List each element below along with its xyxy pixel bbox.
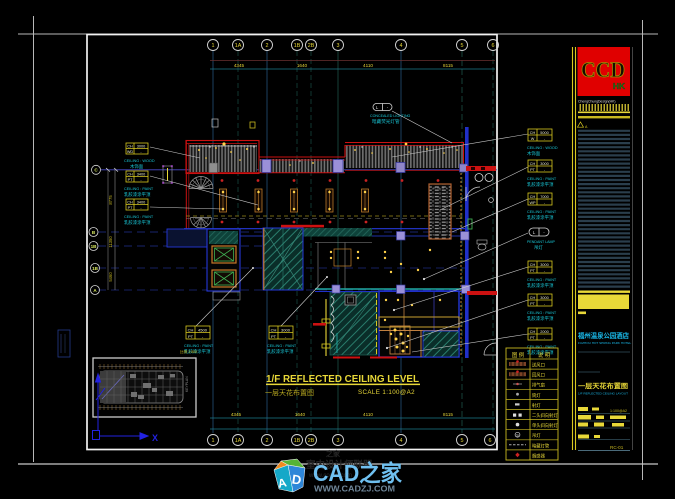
svg-text:CEILING : PAINT: CEILING : PAINT [527, 210, 557, 214]
svg-text:3: 3 [337, 438, 340, 444]
svg-text:图 例: 图 例 [512, 351, 524, 359]
svg-text:WD: WD [127, 150, 134, 154]
svg-text:CH: CH [530, 162, 536, 166]
svg-text:1640: 1640 [297, 63, 308, 68]
svg-text:PT: PT [530, 269, 536, 273]
svg-text:6: 6 [489, 438, 492, 444]
svg-text:送风口: 送风口 [532, 362, 545, 369]
svg-text:CCD: CCD [581, 57, 625, 82]
svg-text:2000: 2000 [540, 330, 548, 334]
svg-text:PT: PT [530, 168, 536, 172]
svg-text:二头斜向射灯: 二头斜向射灯 [532, 412, 558, 419]
svg-text:1A: 1A [235, 43, 242, 49]
svg-text:暗藏灯管: 暗藏灯管 [532, 442, 550, 449]
svg-text:4: 4 [400, 438, 403, 444]
svg-text:FUZHOU HOT SPRING PARK HOTEL: FUZHOU HOT SPRING PARK HOTEL [578, 341, 631, 345]
svg-text:1/F REFLECTED CEILING LEVEL: 1/F REFLECTED CEILING LEVEL [266, 373, 420, 385]
svg-text:HK: HK [613, 81, 626, 91]
svg-text:PT: PT [128, 178, 134, 182]
svg-text:木饰面: 木饰面 [527, 150, 541, 157]
svg-text:PT: PT [188, 334, 194, 339]
svg-text:乳胶漆涂平顶: 乳胶漆涂平顶 [124, 219, 151, 226]
svg-text:CH: CH [127, 173, 133, 177]
svg-text:3000: 3000 [137, 145, 145, 149]
svg-text:3400: 3400 [137, 173, 145, 177]
svg-text:说 明: 说 明 [538, 351, 550, 359]
svg-text:5000: 5000 [540, 131, 548, 135]
svg-text:CH: CH [530, 131, 536, 135]
svg-text:1640: 1640 [295, 412, 306, 417]
svg-text:RC-01: RC-01 [610, 445, 624, 450]
svg-text:单头斜向射灯: 单头斜向射灯 [532, 422, 558, 429]
svg-text:3000: 3000 [540, 162, 548, 166]
svg-text:CH: CH [530, 263, 536, 267]
svg-text:CEILING : PAINT: CEILING : PAINT [267, 344, 297, 348]
svg-text:2B: 2B [308, 438, 315, 444]
svg-text:1:100@A2: 1:100@A2 [610, 409, 627, 413]
svg-text:乳胶漆涂平顶: 乳胶漆涂平顶 [124, 191, 151, 198]
svg-text:8775: 8775 [108, 195, 113, 205]
svg-text:CEILING : PAINT: CEILING : PAINT [184, 344, 214, 348]
svg-text:CH: CH [530, 330, 536, 334]
svg-text:乳胶漆涂平顶: 乳胶漆涂平顶 [527, 315, 554, 322]
svg-text:CEILING : PAINT: CEILING : PAINT [527, 278, 557, 282]
svg-text:CEILING : PAINT: CEILING : PAINT [124, 215, 154, 219]
svg-text:木饰面: 木饰面 [130, 163, 144, 170]
svg-text:1B: 1B [91, 244, 98, 249]
svg-text:乳胶漆涂平顶: 乳胶漆涂平顶 [527, 282, 554, 289]
svg-text:1A: 1A [235, 438, 242, 444]
svg-text:4110: 4110 [363, 412, 373, 417]
svg-text:ChengChungDesign(HK): ChengChungDesign(HK) [578, 100, 616, 104]
svg-text:PENDANT LAMP: PENDANT LAMP [527, 240, 555, 244]
svg-text:1/F REFLECTED CEILING LAYOUT: 1/F REFLECTED CEILING LAYOUT [578, 392, 628, 396]
svg-text:W: W [531, 137, 535, 141]
svg-text:X: X [152, 433, 158, 443]
svg-text:筒灯: 筒灯 [532, 392, 541, 399]
svg-text:5: 5 [461, 43, 464, 49]
svg-text:CEILING : PAINT: CEILING : PAINT [527, 311, 557, 315]
svg-text:3400: 3400 [137, 201, 145, 205]
svg-text:S: S [516, 433, 519, 438]
svg-text:CH: CH [271, 327, 277, 332]
svg-text:WWW.CADZJ.COM: WWW.CADZJ.COM [314, 485, 395, 494]
svg-text:1B: 1B [294, 43, 301, 49]
svg-text:CEILING : WOOD: CEILING : WOOD [124, 159, 155, 163]
svg-text:WP: WP [529, 201, 536, 205]
svg-text:排气扇: 排气扇 [532, 382, 545, 389]
svg-text:4: 4 [400, 43, 403, 49]
svg-text:吊灯: 吊灯 [532, 432, 541, 439]
svg-text:CEILING : PAINT: CEILING : PAINT [124, 187, 154, 191]
svg-text:乳胶漆涂平顶: 乳胶漆涂平顶 [527, 214, 554, 221]
svg-text:PT: PT [271, 334, 277, 339]
svg-text:乳胶漆涂平顶: 乳胶漆涂平顶 [527, 181, 554, 188]
svg-text:3000: 3000 [540, 263, 548, 267]
svg-text:吊灯: 吊灯 [534, 244, 543, 251]
svg-text:2B: 2B [308, 43, 315, 49]
svg-text:4345: 4345 [231, 412, 242, 417]
svg-text:乳胶漆涂平顶: 乳胶漆涂平顶 [267, 348, 294, 355]
svg-text:1B: 1B [92, 266, 99, 271]
svg-text:2: 2 [266, 438, 269, 444]
svg-text:CEILING : PAINT: CEILING : PAINT [527, 177, 557, 181]
svg-text:PT: PT [128, 206, 134, 210]
svg-text:8115: 8115 [443, 63, 453, 68]
svg-text:3000: 3000 [540, 296, 548, 300]
svg-text:7000: 7000 [540, 195, 548, 199]
svg-text:CAD之家: CAD之家 [313, 460, 402, 486]
svg-text:KEYPLAN: KEYPLAN [185, 376, 189, 392]
svg-text:11350: 11350 [108, 236, 113, 248]
svg-text:3000: 3000 [281, 327, 291, 332]
svg-text:CEILING : WOOD: CEILING : WOOD [527, 146, 558, 150]
svg-text:CH: CH [127, 145, 133, 149]
svg-text:烟感器: 烟感器 [532, 452, 546, 459]
svg-text:1B: 1B [294, 438, 301, 444]
svg-text:一层天花布置图: 一层天花布置图 [265, 388, 314, 397]
svg-text:之家: 之家 [326, 449, 341, 458]
svg-text:4345: 4345 [234, 63, 245, 68]
svg-text:4110: 4110 [363, 63, 373, 68]
svg-text:8115: 8115 [443, 412, 453, 417]
svg-text:一层天花布置图: 一层天花布置图 [578, 381, 628, 390]
svg-text:比例 1:500: 比例 1:500 [180, 349, 197, 354]
svg-text:5: 5 [461, 438, 464, 444]
svg-text:1: 1 [212, 43, 215, 49]
svg-text:PT: PT [530, 336, 536, 340]
svg-text:CH: CH [530, 296, 536, 300]
svg-text:射灯: 射灯 [532, 402, 541, 409]
svg-text:4500: 4500 [198, 327, 208, 332]
svg-text:暗藏荧光灯管: 暗藏荧光灯管 [372, 118, 400, 125]
svg-text:PT: PT [530, 302, 536, 306]
svg-text:SCALE 1:100@A2: SCALE 1:100@A2 [358, 389, 415, 396]
svg-text:1: 1 [212, 438, 215, 444]
svg-text:5460: 5460 [108, 272, 113, 282]
svg-text:CH: CH [127, 201, 133, 205]
svg-text:CH: CH [530, 195, 536, 199]
svg-text:CH: CH [188, 327, 194, 332]
svg-text:6: 6 [492, 43, 495, 49]
svg-text:3: 3 [337, 43, 340, 49]
svg-text:2: 2 [266, 43, 269, 49]
svg-text:福州温泉公园酒店: 福州温泉公园酒店 [577, 331, 629, 340]
